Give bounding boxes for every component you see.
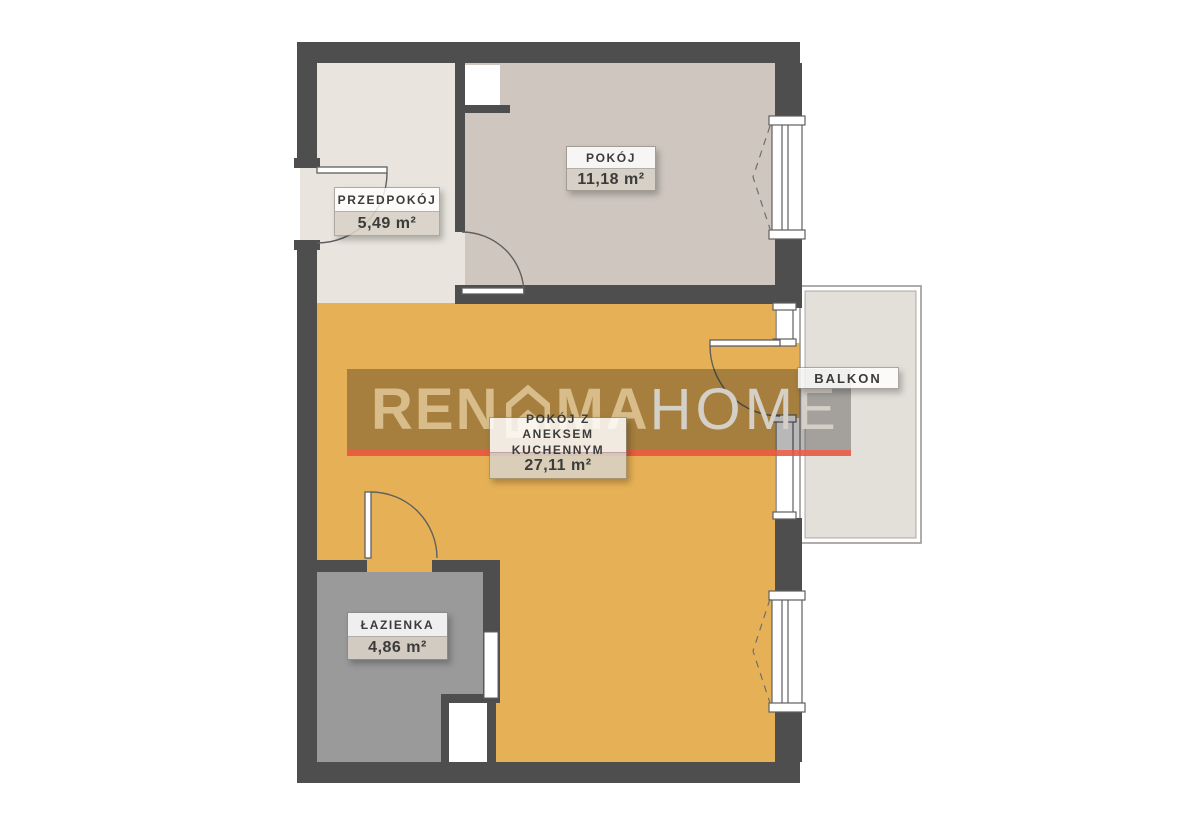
wall-hall-divider [455, 63, 465, 232]
wall-left-upper [297, 42, 317, 168]
shaft-top [465, 65, 500, 105]
window-main-lower [769, 591, 805, 712]
wall-left-lower [297, 240, 317, 762]
label-main-room-name-line1: POKÓJ Z ANEKSEM [490, 412, 626, 443]
label-lazienka: ŁAZIENKA 4,86 m² [347, 612, 448, 660]
label-pokoj: POKÓJ 11,18 m² [566, 146, 656, 191]
window-main-opening-line [753, 599, 770, 703]
wall-shaft2-left [441, 703, 449, 762]
label-przedpokoj-area: 5,49 m² [335, 212, 439, 235]
bath-niche [484, 632, 498, 698]
floorplan-page: { "watermark": { "brand_part1": "REN", "… [0, 0, 1200, 823]
label-main-room-name: POKÓJ Z ANEKSEM KUCHENNYM [490, 418, 626, 453]
label-main-room-area: 27,11 m² [490, 453, 626, 478]
wall-shaft-bottom [455, 105, 510, 113]
wall-bath-top-left [317, 560, 367, 572]
label-balkon: BALKON [797, 367, 899, 389]
wall-top [297, 42, 800, 63]
watermark-brand-part3: HOME [650, 381, 840, 439]
wall-balcony-corner-top [775, 268, 802, 308]
label-przedpokoj: PRZEDPOKÓJ 5,49 m² [334, 187, 440, 236]
wall-right-upper [775, 63, 802, 122]
label-przedpokoj-name: PRZEDPOKÓJ [335, 188, 439, 212]
label-lazienka-area: 4,86 m² [348, 637, 447, 659]
label-main-room: POKÓJ Z ANEKSEM KUCHENNYM 27,11 m² [489, 417, 627, 479]
wall-balcony-corner-bottom [775, 518, 802, 595]
window-pokoj [769, 116, 805, 239]
shaft-bottom [449, 703, 487, 762]
wall-shaft2-right [487, 703, 496, 762]
window-pokoj-opening-line [753, 126, 770, 229]
wall-entry-jamb-top [294, 158, 320, 168]
wall-right-lower [775, 708, 802, 762]
label-lazienka-name: ŁAZIENKA [348, 613, 447, 637]
label-pokoj-area: 11,18 m² [567, 169, 655, 190]
label-pokoj-name: POKÓJ [567, 147, 655, 169]
label-balkon-name: BALKON [798, 368, 898, 388]
wall-bottom [297, 762, 800, 783]
door-pokoj [462, 232, 524, 294]
watermark-brand-part1: REN [371, 381, 499, 439]
door-lazienka [365, 492, 437, 558]
